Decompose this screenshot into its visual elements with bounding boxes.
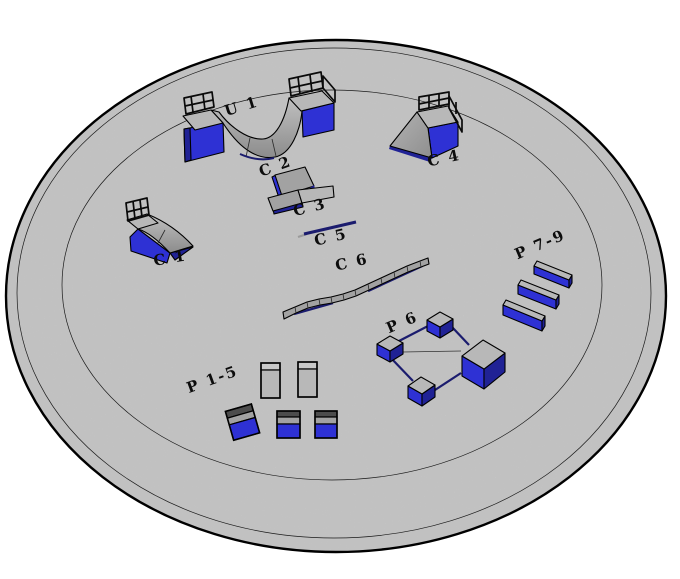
p4-box <box>277 411 300 438</box>
platform-texture <box>0 0 680 579</box>
u1-left-base-side <box>184 128 191 162</box>
p2-tall-box <box>298 362 317 397</box>
p5-box <box>315 411 337 438</box>
p1-tall-box <box>261 363 280 398</box>
skatepark-scene: U 1 C 1 C 2 C 3 <box>0 0 680 579</box>
skatepark-canvas: U 1 C 1 C 2 C 3 <box>0 0 680 579</box>
ground <box>0 0 680 579</box>
